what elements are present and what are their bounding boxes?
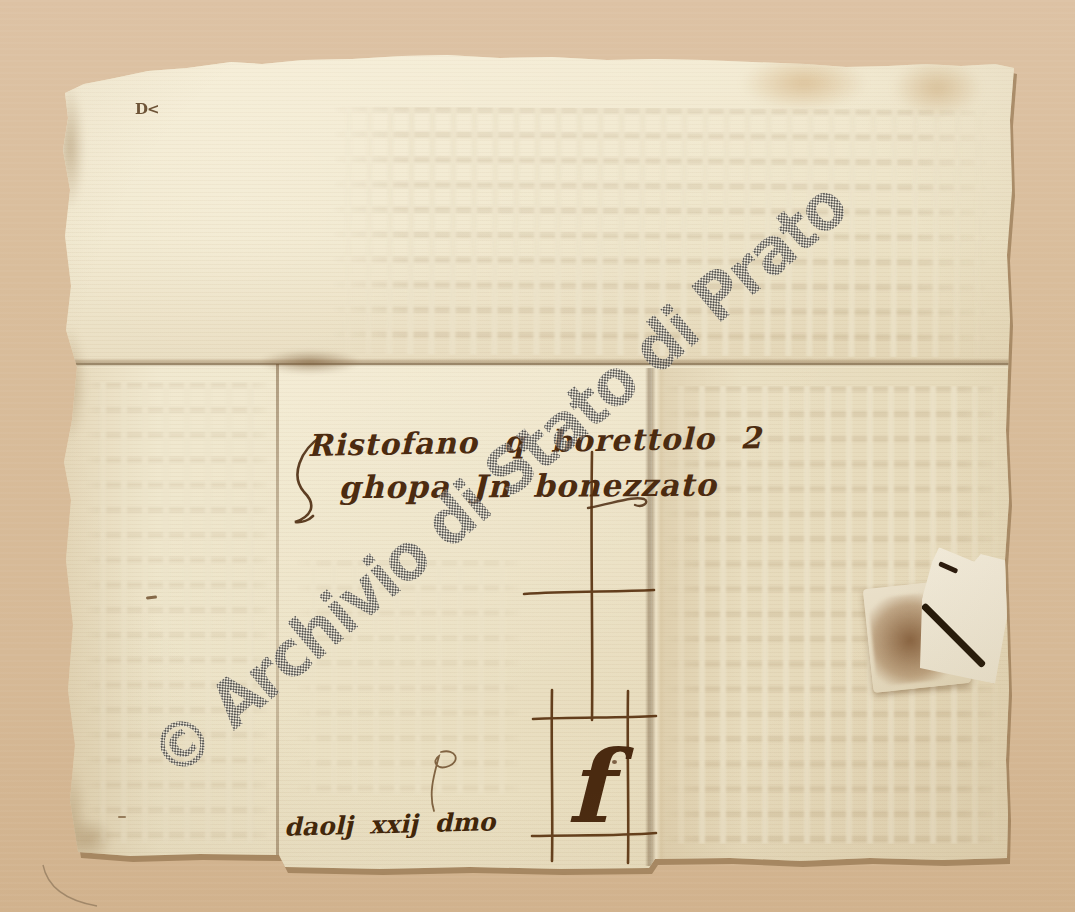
scanner-bed: D< Ristofano q borettolo 2 ghopa Jn bone… — [0, 0, 1075, 912]
stray-fiber — [35, 860, 105, 912]
